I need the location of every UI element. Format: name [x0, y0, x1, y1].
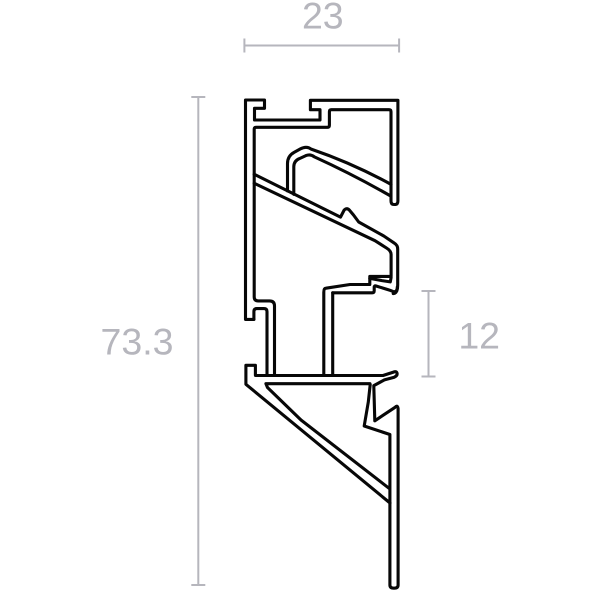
svg-text:12: 12 [458, 315, 500, 357]
svg-text:23: 23 [302, 0, 344, 37]
svg-text:73.3: 73.3 [101, 321, 174, 363]
